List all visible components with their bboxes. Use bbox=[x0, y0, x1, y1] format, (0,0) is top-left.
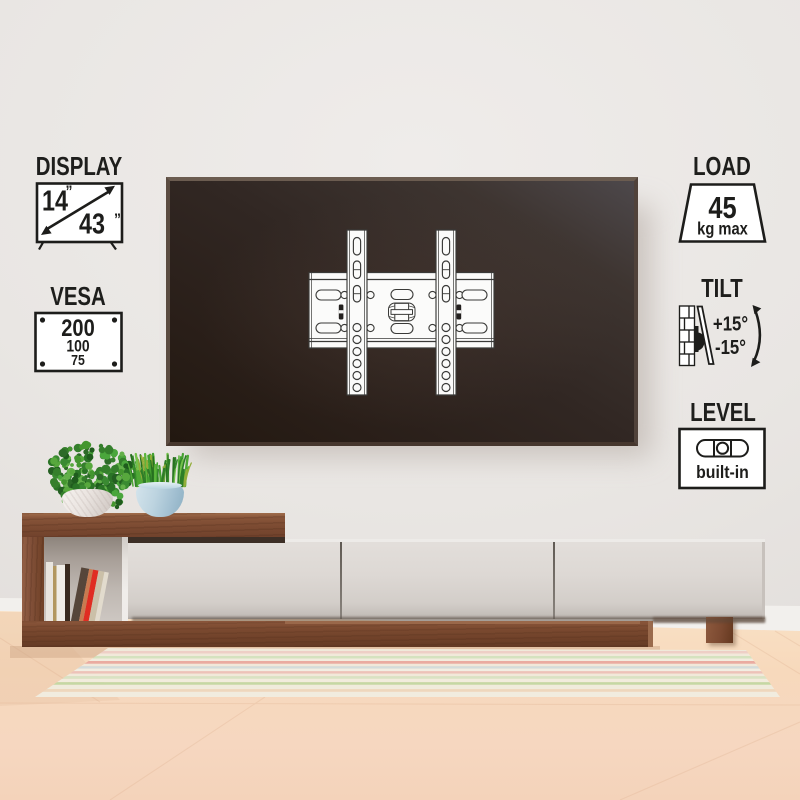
svg-text:43: 43 bbox=[79, 207, 105, 240]
svg-text:+15°: +15° bbox=[713, 312, 748, 335]
svg-text:-15°: -15° bbox=[715, 335, 746, 358]
svg-text:75: 75 bbox=[71, 352, 85, 368]
svg-text:”: ” bbox=[114, 211, 121, 230]
svg-text:14: 14 bbox=[42, 184, 68, 217]
svg-text:built-in: built-in bbox=[696, 462, 749, 482]
svg-text:kg max: kg max bbox=[697, 219, 748, 238]
svg-text:”: ” bbox=[66, 183, 73, 202]
